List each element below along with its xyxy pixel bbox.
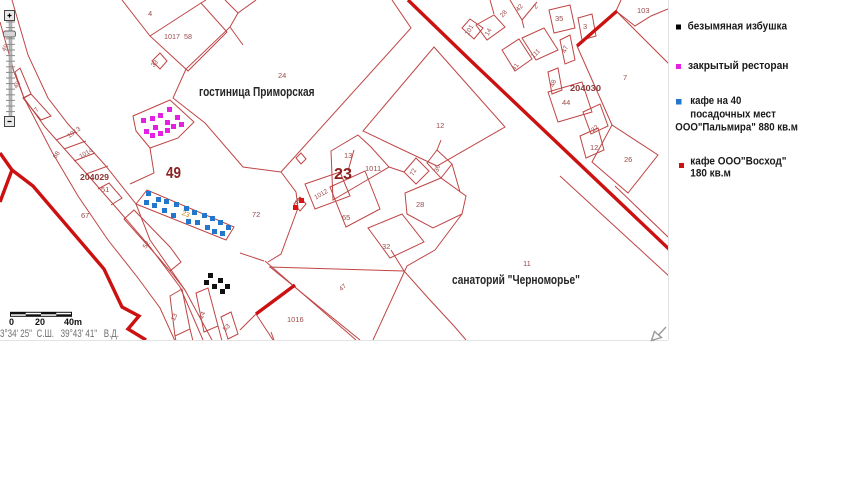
svg-text:180 кв.м: 180 кв.м [690, 167, 731, 179]
svg-text:72: 72 [252, 210, 260, 219]
svg-text:47: 47 [338, 283, 348, 293]
svg-text:51: 51 [101, 185, 109, 194]
svg-text:санаторий "Черноморье": санаторий "Черноморье" [452, 273, 580, 287]
svg-text:32: 32 [382, 242, 390, 251]
svg-text:20: 20 [35, 317, 45, 327]
svg-text:36: 36 [433, 164, 442, 173]
svg-text:48: 48 [549, 79, 558, 89]
svg-text:26: 26 [624, 155, 632, 164]
svg-text:13: 13 [170, 312, 180, 322]
svg-text:кафе ООО"Восход": кафе ООО"Восход" [690, 155, 786, 167]
svg-text:28: 28 [416, 200, 424, 209]
svg-text:12: 12 [436, 121, 444, 130]
svg-text:1014: 1014 [78, 147, 94, 160]
svg-text:49: 49 [166, 165, 181, 182]
svg-text:ООО"Пальмира" 880 кв.м: ООО"Пальмира" 880 кв.м [675, 121, 798, 133]
svg-text:4: 4 [148, 9, 152, 18]
svg-text:1012: 1012 [313, 188, 329, 201]
svg-text:1017 58: 1017 58 [164, 32, 192, 41]
svg-text:24: 24 [278, 71, 286, 80]
svg-text:41: 41 [511, 62, 521, 72]
svg-text:безымяная избушка: безымяная избушка [688, 21, 788, 33]
svg-text:35: 35 [555, 14, 563, 23]
svg-text:72: 72 [409, 167, 419, 177]
svg-text:204030: 204030 [570, 84, 602, 93]
svg-text:13: 13 [344, 151, 352, 160]
svg-text:65: 65 [342, 213, 350, 222]
svg-text:23: 23 [181, 210, 191, 219]
svg-text:посадочных мест: посадочных мест [690, 109, 776, 121]
svg-text:44: 44 [562, 98, 570, 107]
svg-text:кафе на 40: кафе на 40 [690, 95, 741, 107]
svg-text:1016: 1016 [287, 315, 304, 324]
svg-text:47: 47 [561, 45, 570, 55]
svg-text:0: 0 [9, 317, 14, 327]
svg-text:101: 101 [464, 23, 476, 36]
svg-text:3°34' 25" С.Ш. 39°43' 41": 3°34' 25" С.Ш. 39°43' 41" В.Д. [0, 328, 119, 340]
svg-text:28: 28 [499, 9, 509, 19]
svg-text:40m: 40m [64, 317, 82, 327]
svg-text:204029: 204029 [80, 173, 110, 182]
svg-text:23: 23 [334, 166, 352, 183]
svg-text:11: 11 [523, 259, 531, 268]
svg-text:3: 3 [583, 22, 587, 31]
svg-text:67: 67 [81, 211, 89, 220]
svg-text:7: 7 [623, 73, 627, 82]
svg-text:гостиница Приморская: гостиница Приморская [199, 85, 315, 99]
svg-text:12: 12 [590, 143, 598, 152]
svg-text:закрытый ресторан: закрытый ресторан [688, 60, 789, 72]
svg-text:2: 2 [532, 3, 540, 11]
svg-text:103: 103 [637, 6, 650, 15]
svg-text:68: 68 [52, 150, 62, 160]
svg-text:1011: 1011 [365, 164, 381, 173]
